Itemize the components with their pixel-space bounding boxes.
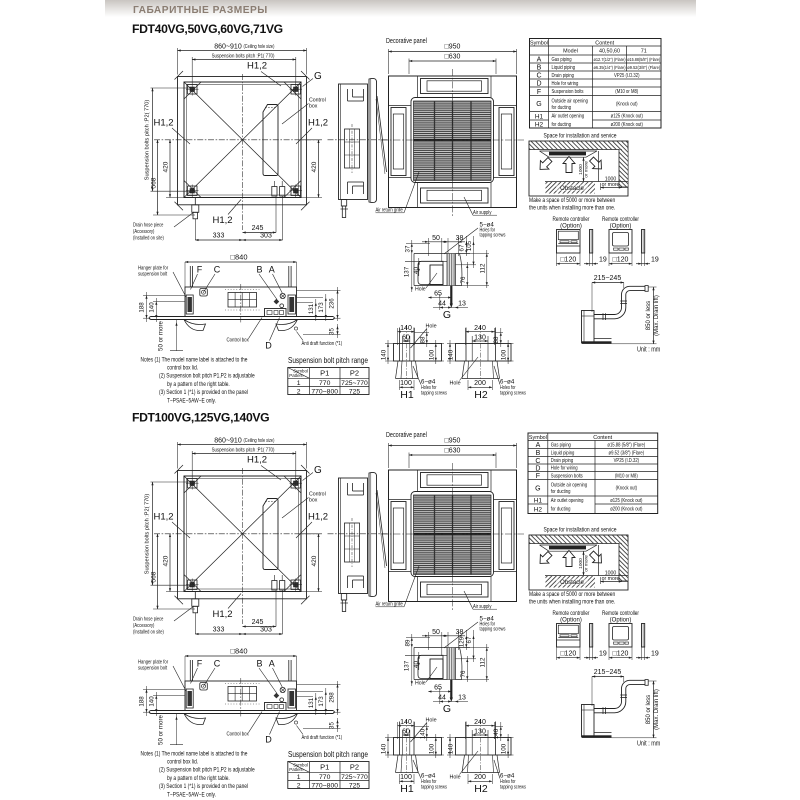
svg-text:tapping screws: tapping screws xyxy=(421,784,448,790)
svg-text:H1,2: H1,2 xyxy=(212,215,232,226)
svg-text:(Installed on site): (Installed on site) xyxy=(133,629,164,635)
svg-text:Hanger plate for: Hanger plate for xyxy=(138,659,168,666)
svg-text:H1,2: H1,2 xyxy=(308,512,328,523)
svg-text:(Ceiling hole size): (Ceiling hole size) xyxy=(244,438,275,444)
svg-text:Model: Model xyxy=(563,49,578,55)
svg-text:B: B xyxy=(537,65,542,72)
svg-text:VP25 (I.D.32): VP25 (I.D.32) xyxy=(614,73,640,80)
svg-text:38: 38 xyxy=(456,235,464,242)
svg-text:568: 568 xyxy=(151,177,158,188)
svg-text:Content: Content xyxy=(595,40,614,46)
svg-text:Drain hose piece: Drain hose piece xyxy=(133,616,164,622)
svg-text:13: 13 xyxy=(458,301,466,308)
svg-text:112: 112 xyxy=(479,657,486,667)
svg-text:H1: H1 xyxy=(400,389,414,401)
svg-text:Liquid piping: Liquid piping xyxy=(551,65,575,72)
svg-text:Suspension bolts: Suspension bolts xyxy=(551,89,583,96)
svg-text:Remote controller: Remote controller xyxy=(553,217,590,224)
svg-text:D: D xyxy=(265,735,272,745)
svg-text:P2: P2 xyxy=(350,763,359,772)
svg-text:65: 65 xyxy=(434,291,442,298)
svg-text:Content: Content xyxy=(593,435,612,441)
svg-text:Decorative panel: Decorative panel xyxy=(386,431,427,439)
svg-text:60: 60 xyxy=(402,335,410,342)
svg-text:D: D xyxy=(536,81,541,88)
svg-text:ø15.88(5/8″) (Flare): ø15.88(5/8″) (Flare) xyxy=(627,57,660,62)
svg-text:Symbol: Symbol xyxy=(529,435,547,441)
svg-text:□120: □120 xyxy=(560,651,576,658)
svg-text:37: 37 xyxy=(405,245,412,252)
svg-text:□950: □950 xyxy=(445,44,461,51)
svg-text:Hanger plate for: Hanger plate for xyxy=(138,265,168,272)
svg-text:□840: □840 xyxy=(230,253,247,262)
svg-text:50: 50 xyxy=(432,629,440,636)
svg-text:ø12.7(1/2″) (Flare): ø12.7(1/2″) (Flare) xyxy=(594,57,626,62)
svg-text:(Accessory): (Accessory) xyxy=(133,623,155,629)
svg-text:suspension bolt: suspension bolt xyxy=(138,271,168,278)
svg-text:H1: H1 xyxy=(534,498,543,505)
svg-text:Notes (1) The model name labe: Notes (1) The model name label is attach… xyxy=(141,357,248,364)
svg-text:G: G xyxy=(314,71,322,82)
svg-text:860~910: 860~910 xyxy=(214,44,242,51)
svg-text:35: 35 xyxy=(329,722,336,729)
svg-text:850 or less: 850 or less xyxy=(646,301,652,330)
svg-text:H1,2: H1,2 xyxy=(247,455,267,466)
svg-text:B: B xyxy=(256,659,262,669)
svg-text:tapping screws: tapping screws xyxy=(500,784,527,790)
svg-text:A: A xyxy=(537,57,542,64)
svg-text:Control box: Control box xyxy=(226,337,249,344)
svg-text:Anti draft function (*1): Anti draft function (*1) xyxy=(302,341,343,348)
svg-text:F: F xyxy=(197,265,203,275)
svg-text:G: G xyxy=(536,101,541,108)
svg-text:200: 200 xyxy=(474,774,486,781)
svg-text:(Max. Drain lift): (Max. Drain lift) xyxy=(654,295,660,336)
svg-text:770: 770 xyxy=(319,380,331,387)
svg-text:140: 140 xyxy=(380,743,387,754)
svg-text:140: 140 xyxy=(380,349,387,360)
svg-text:H1,2: H1,2 xyxy=(308,118,328,129)
svg-text:or more: or more xyxy=(584,161,590,178)
svg-text:C: C xyxy=(214,659,221,669)
svg-text:1000: 1000 xyxy=(578,164,584,175)
svg-text:140: 140 xyxy=(148,696,155,707)
svg-text:F: F xyxy=(536,473,540,480)
svg-text:A: A xyxy=(536,442,541,449)
svg-text:□120: □120 xyxy=(613,257,629,264)
svg-text:19: 19 xyxy=(651,651,659,658)
svg-text:H1,2: H1,2 xyxy=(153,118,173,129)
svg-text:Anti draft function (*1): Anti draft function (*1) xyxy=(302,735,343,742)
svg-text:Air outlet opening: Air outlet opening xyxy=(551,498,584,505)
svg-text:(2) Suspension bolt pitch P1,P: (2) Suspension bolt pitch P1,P2 is adjus… xyxy=(159,373,255,380)
svg-text:188: 188 xyxy=(139,696,146,707)
svg-text:Unit : mm: Unit : mm xyxy=(637,740,660,748)
svg-text:Outside air opening: Outside air opening xyxy=(551,482,588,489)
svg-text:A: A xyxy=(269,265,275,275)
svg-text:ø9.52(3/8″) (Flare): ø9.52(3/8″) (Flare) xyxy=(627,65,660,70)
svg-text:H2: H2 xyxy=(474,389,488,401)
svg-text:H2: H2 xyxy=(535,122,544,129)
svg-text:215~245: 215~245 xyxy=(594,275,622,282)
svg-text:2: 2 xyxy=(297,782,301,789)
svg-text:Suspension bolt pitch range: Suspension bolt pitch range xyxy=(288,355,368,365)
svg-text:770: 770 xyxy=(319,774,331,781)
svg-text:control box lid.: control box lid. xyxy=(167,759,199,766)
svg-text:A: A xyxy=(269,659,275,669)
svg-text:Hole: Hole xyxy=(426,324,437,330)
svg-text:for ducting: for ducting xyxy=(551,506,571,513)
svg-text:tapping screws: tapping screws xyxy=(421,390,448,396)
svg-text:71: 71 xyxy=(641,49,647,55)
svg-text:50 or more: 50 or more xyxy=(158,320,165,350)
svg-text:(M10 or M8): (M10 or M8) xyxy=(615,473,638,480)
svg-text:173: 173 xyxy=(318,696,325,707)
svg-text:Control box: Control box xyxy=(226,731,249,738)
svg-text:G: G xyxy=(535,485,540,492)
svg-text:88: 88 xyxy=(493,336,500,343)
svg-text:D: D xyxy=(265,341,272,351)
svg-text:Make a space of 5000 or more b: Make a space of 5000 or more between xyxy=(529,198,615,205)
svg-text:VP25 (I.D.32): VP25 (I.D.32) xyxy=(614,458,640,465)
svg-text:H1: H1 xyxy=(400,783,414,795)
svg-text:89: 89 xyxy=(405,639,412,646)
svg-text:131: 131 xyxy=(308,697,315,708)
svg-text:□630: □630 xyxy=(445,54,461,61)
svg-text:F: F xyxy=(537,89,541,96)
svg-text:88: 88 xyxy=(420,336,427,343)
svg-text:Suspension bolts pitch :P1( 77: Suspension bolts pitch :P1( 770) xyxy=(212,53,275,60)
svg-text:(Ceiling hole size): (Ceiling hole size) xyxy=(244,44,275,50)
svg-text:Pattern: Pattern xyxy=(289,373,304,378)
svg-text:19: 19 xyxy=(599,651,607,658)
svg-text:333: 333 xyxy=(213,627,225,634)
svg-text:Outside air opening: Outside air opening xyxy=(551,98,588,105)
svg-text:for ducting: for ducting xyxy=(551,122,571,129)
svg-text:T−PSAE−5AW−E only.: T−PSAE−5AW−E only. xyxy=(167,398,216,405)
svg-text:H1,2: H1,2 xyxy=(153,512,173,523)
svg-text:2: 2 xyxy=(297,388,301,395)
svg-text:303: 303 xyxy=(260,233,272,240)
svg-text:100: 100 xyxy=(501,743,508,754)
svg-text:Remote controller: Remote controller xyxy=(602,217,639,224)
svg-text:236: 236 xyxy=(329,298,336,309)
svg-text:T−PSAE−5AW−E only.: T−PSAE−5AW−E only. xyxy=(167,792,216,799)
svg-text:or more: or more xyxy=(602,576,620,582)
svg-text:H2: H2 xyxy=(534,506,543,513)
svg-text:Suspension bolts pitch :P1( 77: Suspension bolts pitch :P1( 770) xyxy=(212,447,275,454)
svg-text:67: 67 xyxy=(459,244,466,251)
svg-text:130: 130 xyxy=(474,335,486,342)
svg-text:Decorative panel: Decorative panel xyxy=(386,37,427,45)
svg-text:(Knock out): (Knock out) xyxy=(616,101,638,108)
svg-text:Make a space of 5000 or more b: Make a space of 5000 or more between xyxy=(529,592,615,599)
svg-text:box: box xyxy=(309,498,318,504)
svg-text:140: 140 xyxy=(493,728,500,739)
svg-text:65: 65 xyxy=(434,685,442,692)
svg-text:box: box xyxy=(309,104,318,110)
svg-text:P2: P2 xyxy=(350,369,359,378)
svg-text:Suspension bolt pitch range: Suspension bolt pitch range xyxy=(288,749,368,759)
svg-text:ГАБАРИТНЫЕ РАЗМЕРЫ: ГАБАРИТНЫЕ РАЗМЕРЫ xyxy=(133,5,268,16)
svg-text:C: C xyxy=(536,73,541,80)
svg-text:215~245: 215~245 xyxy=(594,669,622,676)
svg-text:Remote controller: Remote controller xyxy=(553,611,590,618)
svg-text:100: 100 xyxy=(400,380,412,387)
svg-text:188: 188 xyxy=(139,302,146,313)
svg-text:(Accessory): (Accessory) xyxy=(133,229,155,235)
svg-text:for ducting: for ducting xyxy=(551,489,571,496)
svg-text:□950: □950 xyxy=(445,438,461,445)
svg-text:173: 173 xyxy=(318,302,325,313)
svg-text:140: 140 xyxy=(400,325,412,332)
svg-text:the units when installing more: the units when installing more than one. xyxy=(529,205,616,212)
svg-text:ø200 (Knock out): ø200 (Knock out) xyxy=(610,506,643,513)
svg-text:50 or more: 50 or more xyxy=(158,714,165,744)
svg-text:(Option): (Option) xyxy=(610,618,632,624)
svg-text:Pattern: Pattern xyxy=(289,767,304,772)
svg-text:140: 140 xyxy=(148,302,155,313)
svg-text:Suspension bolts pitch :P2( 77: Suspension bolts pitch :P2( 770) xyxy=(145,100,151,181)
svg-text:H2: H2 xyxy=(474,783,488,795)
svg-text:240: 240 xyxy=(474,719,486,726)
svg-text:Gas piping: Gas piping xyxy=(551,442,571,449)
svg-text:G: G xyxy=(314,465,322,476)
svg-text:ø125 (Knock out): ø125 (Knock out) xyxy=(611,113,644,120)
svg-text:Drain piping: Drain piping xyxy=(551,458,574,465)
svg-text:B: B xyxy=(256,265,262,275)
svg-text:(M10 or M8): (M10 or M8) xyxy=(615,89,638,96)
svg-text:Hole: Hole xyxy=(415,287,426,293)
svg-text:420: 420 xyxy=(311,555,318,566)
svg-text:100: 100 xyxy=(400,774,412,781)
svg-text:44: 44 xyxy=(438,695,446,702)
svg-text:725: 725 xyxy=(349,388,361,395)
svg-text:□120: □120 xyxy=(560,257,576,264)
svg-text:Hole: Hole xyxy=(426,718,437,724)
svg-text:C: C xyxy=(214,265,221,275)
svg-text:38: 38 xyxy=(456,629,464,636)
svg-text:112: 112 xyxy=(479,263,486,273)
svg-text:1: 1 xyxy=(297,380,301,387)
svg-text:ø6.35(1/4″) (Flare): ø6.35(1/4″) (Flare) xyxy=(594,65,626,70)
svg-text:control box lid.: control box lid. xyxy=(167,365,199,372)
svg-text:tapping screws: tapping screws xyxy=(479,232,506,238)
svg-text:303: 303 xyxy=(260,627,272,634)
svg-text:FDT40VG,50VG,60VG,71VG: FDT40VG,50VG,60VG,71VG xyxy=(132,22,283,36)
svg-text:137: 137 xyxy=(404,266,411,277)
svg-text:725: 725 xyxy=(349,782,361,789)
svg-text:420: 420 xyxy=(163,555,170,566)
svg-text:Hole for wiring: Hole for wiring xyxy=(551,81,578,88)
svg-text:P1: P1 xyxy=(320,763,329,772)
svg-text:35: 35 xyxy=(329,328,336,335)
svg-text:G: G xyxy=(443,703,451,715)
svg-text:13: 13 xyxy=(458,695,466,702)
svg-text:Liquid piping: Liquid piping xyxy=(551,450,575,457)
svg-text:C: C xyxy=(535,458,540,465)
svg-text:F: F xyxy=(197,659,203,669)
svg-text:333: 333 xyxy=(213,233,225,240)
svg-text:(Option): (Option) xyxy=(610,224,632,230)
svg-text:(2) Suspension bolt pitch P1,P: (2) Suspension bolt pitch P1,P2 is adjus… xyxy=(159,767,255,774)
svg-text:Obstacle: Obstacle xyxy=(560,580,584,586)
svg-text:(Knock out): (Knock out) xyxy=(616,485,638,492)
svg-text:Space for installation and ser: Space for installation and service xyxy=(544,133,617,140)
svg-text:(Option): (Option) xyxy=(560,618,582,624)
svg-text:or more: or more xyxy=(584,555,590,572)
svg-text:tapping screws: tapping screws xyxy=(500,390,527,396)
svg-text:ø200 (Knock out): ø200 (Knock out) xyxy=(611,122,644,129)
svg-text:D: D xyxy=(535,465,540,472)
svg-text:298: 298 xyxy=(329,692,336,703)
svg-text:Hole for wiring: Hole for wiring xyxy=(551,465,578,472)
svg-text:140: 140 xyxy=(420,728,427,739)
svg-text:130: 130 xyxy=(474,729,486,736)
svg-text:131: 131 xyxy=(308,303,315,314)
svg-text:Hole: Hole xyxy=(450,381,461,387)
svg-text:Notes (1) The model name labe: Notes (1) The model name label is attach… xyxy=(141,751,248,758)
svg-text:140: 140 xyxy=(400,719,412,726)
svg-text:by a pattern of the right tabl: by a pattern of the right table. xyxy=(167,775,230,782)
svg-text:B: B xyxy=(536,450,541,457)
svg-text:Drain hose piece: Drain hose piece xyxy=(133,222,164,228)
svg-text:100: 100 xyxy=(501,349,508,360)
svg-text:850 or less: 850 or less xyxy=(646,695,652,724)
svg-text:□630: □630 xyxy=(445,448,461,455)
svg-text:P1: P1 xyxy=(320,369,329,378)
svg-text:□120: □120 xyxy=(613,651,629,658)
svg-text:FDT100VG,125VG,140VG: FDT100VG,125VG,140VG xyxy=(132,411,269,425)
svg-text:100: 100 xyxy=(428,743,435,754)
svg-text:Air outlet opening: Air outlet opening xyxy=(551,113,584,120)
svg-text:770~800: 770~800 xyxy=(311,388,338,395)
svg-text:ø15.88 (5/8″) (Flare): ø15.88 (5/8″) (Flare) xyxy=(607,442,645,449)
svg-text:19: 19 xyxy=(651,257,659,264)
svg-text:76: 76 xyxy=(460,276,467,283)
svg-text:245: 245 xyxy=(252,619,264,626)
svg-text:44: 44 xyxy=(438,301,446,308)
svg-text:(Max. Drain lift): (Max. Drain lift) xyxy=(654,689,660,730)
svg-text:105: 105 xyxy=(466,240,473,251)
svg-text:725~770: 725~770 xyxy=(341,380,368,387)
svg-text:Drain piping: Drain piping xyxy=(551,73,574,80)
svg-text:(Option): (Option) xyxy=(560,224,582,230)
svg-text:H1,2: H1,2 xyxy=(247,61,267,72)
svg-text:420: 420 xyxy=(311,161,318,172)
svg-text:suspension bolt: suspension bolt xyxy=(138,665,168,672)
svg-text:Hole: Hole xyxy=(415,681,426,687)
svg-text:by a pattern of the right tabl: by a pattern of the right table. xyxy=(167,381,230,388)
svg-text:100: 100 xyxy=(428,349,435,360)
svg-text:(Installed on site): (Installed on site) xyxy=(133,235,164,241)
svg-text:(3) Section 1 (*1) is provided: (3) Section 1 (*1) is provided on the pa… xyxy=(159,784,248,791)
svg-text:40,50,60: 40,50,60 xyxy=(599,49,620,55)
svg-text:H1: H1 xyxy=(535,113,544,120)
svg-text:Symbol: Symbol xyxy=(530,40,548,46)
svg-text:Gas piping: Gas piping xyxy=(551,57,571,64)
svg-text:G: G xyxy=(443,309,451,321)
svg-text:67: 67 xyxy=(466,636,473,643)
svg-text:Unit : mm: Unit : mm xyxy=(637,346,660,354)
svg-text:420: 420 xyxy=(163,161,170,172)
svg-text:1: 1 xyxy=(297,774,301,781)
svg-text:or more: or more xyxy=(602,182,620,188)
svg-text:Remote controller: Remote controller xyxy=(602,611,639,618)
svg-text:200: 200 xyxy=(474,380,486,387)
svg-text:Space for installation and ser: Space for installation and service xyxy=(544,527,617,534)
svg-text:the units when installing more: the units when installing more than one. xyxy=(529,599,616,606)
svg-text:□840: □840 xyxy=(230,647,247,656)
svg-text:for ducting: for ducting xyxy=(551,105,571,112)
svg-text:76: 76 xyxy=(460,670,467,677)
svg-text:60: 60 xyxy=(402,729,410,736)
svg-text:Suspension bolts: Suspension bolts xyxy=(551,473,583,480)
svg-text:(3) Section 1 (*1) is provided: (3) Section 1 (*1) is provided on the pa… xyxy=(159,390,248,397)
svg-text:1000: 1000 xyxy=(578,558,584,569)
svg-text:129: 129 xyxy=(459,636,466,647)
svg-text:ø9.52 (3/8″) (Flare): ø9.52 (3/8″) (Flare) xyxy=(609,450,645,457)
svg-text:245: 245 xyxy=(252,225,264,232)
svg-text:Obstacle: Obstacle xyxy=(560,186,584,192)
svg-text:ø125 (Knock out): ø125 (Knock out) xyxy=(610,498,643,505)
svg-text:50: 50 xyxy=(432,235,440,242)
svg-text:568: 568 xyxy=(151,571,158,582)
svg-text:Suspension bolts pitch :P2( 77: Suspension bolts pitch :P2( 770) xyxy=(145,494,151,575)
svg-text:770~800: 770~800 xyxy=(311,782,338,789)
svg-text:137: 137 xyxy=(404,660,411,671)
svg-text:Hole: Hole xyxy=(450,775,461,781)
svg-text:240: 240 xyxy=(474,325,486,332)
svg-text:725~770: 725~770 xyxy=(341,774,368,781)
svg-text:19: 19 xyxy=(599,257,607,264)
svg-text:tapping screws: tapping screws xyxy=(479,626,506,632)
svg-text:860~910: 860~910 xyxy=(214,438,242,445)
svg-text:H1,2: H1,2 xyxy=(212,609,232,620)
